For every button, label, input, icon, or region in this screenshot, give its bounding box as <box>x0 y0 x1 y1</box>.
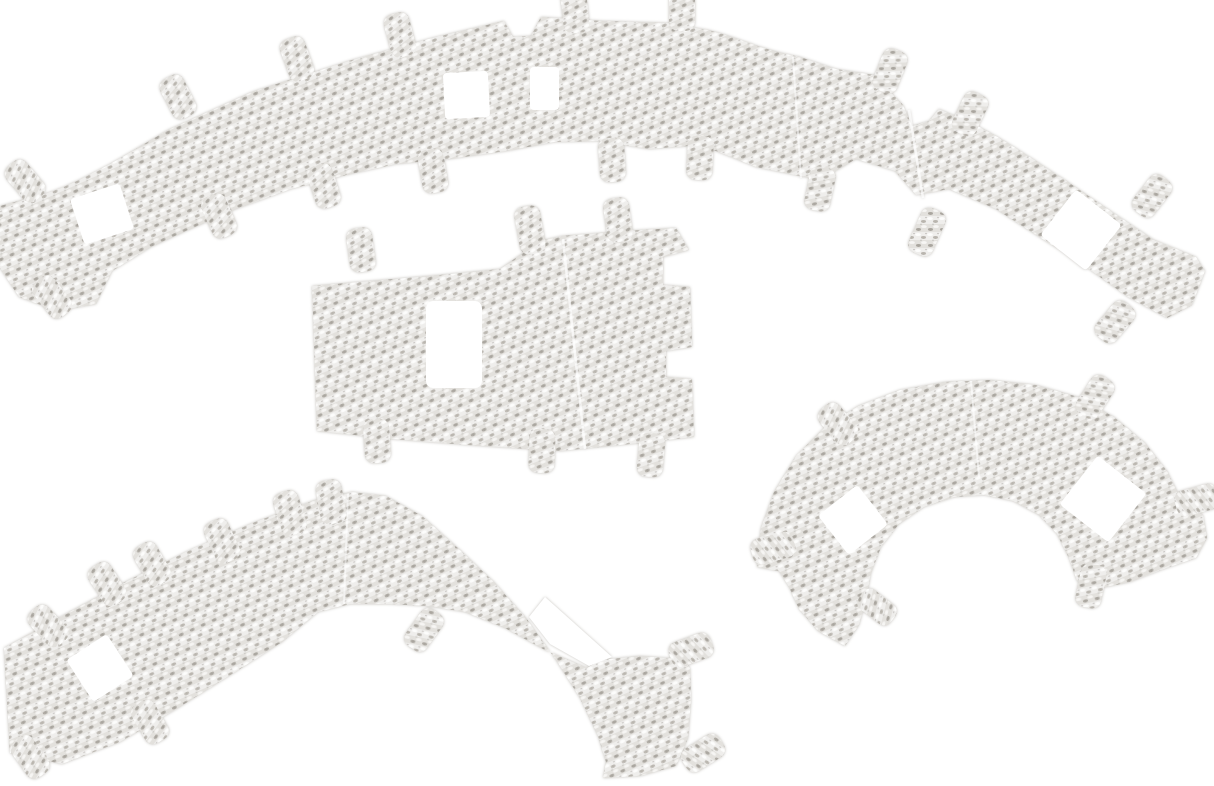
mounting-tab <box>686 135 714 180</box>
product-photo <box>0 0 1214 786</box>
mounting-tab <box>597 137 626 183</box>
mounting-tab <box>528 429 556 474</box>
rect-cutout <box>426 301 482 388</box>
mounting-tab <box>362 418 391 464</box>
heat-shield-kit-image <box>0 0 1214 786</box>
mounting-tab <box>669 0 695 31</box>
mounting-tab <box>636 432 666 478</box>
square-cutout <box>530 67 559 110</box>
square-cutout <box>443 71 490 119</box>
